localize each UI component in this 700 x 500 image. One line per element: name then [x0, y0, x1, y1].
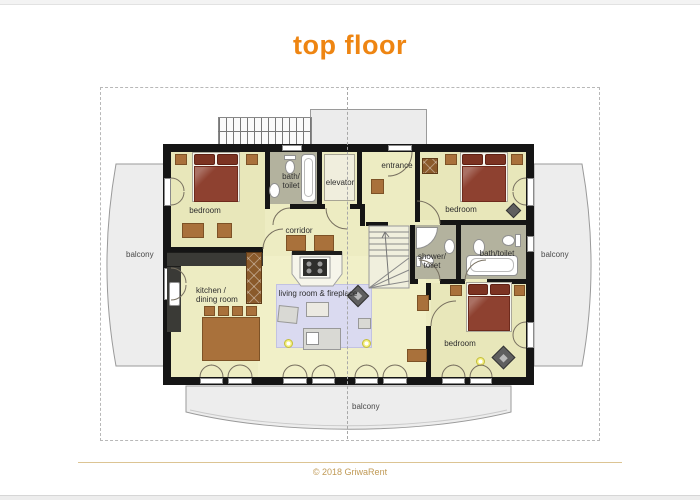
label-bedroom-left: bedroom: [165, 206, 245, 215]
center-dashed-line: [347, 87, 348, 439]
label-elevator: elevator: [310, 178, 370, 187]
floor-plan-page: top floor: [0, 0, 700, 500]
label-bath-toilet-top: bath/ toilet: [271, 172, 311, 190]
label-bedroom-right: bedroom: [421, 205, 501, 214]
label-shower-toilet: shower/ toilet: [412, 252, 452, 270]
label-entrance: entrance: [367, 161, 427, 170]
label-balcony-bottom: balcony: [352, 402, 380, 411]
plan-annotations: [0, 0, 700, 500]
label-corridor: corridor: [269, 226, 329, 235]
label-living-room: living room & fireplace: [268, 289, 368, 298]
label-kitchen: kitchen / dining room: [196, 286, 256, 304]
label-balcony-right: balcony: [541, 250, 569, 259]
label-bedroom-bottom: bedroom: [420, 339, 500, 348]
label-balcony-left: balcony: [126, 250, 154, 259]
label-bath-toilet-right: bath/toilet: [467, 249, 527, 258]
